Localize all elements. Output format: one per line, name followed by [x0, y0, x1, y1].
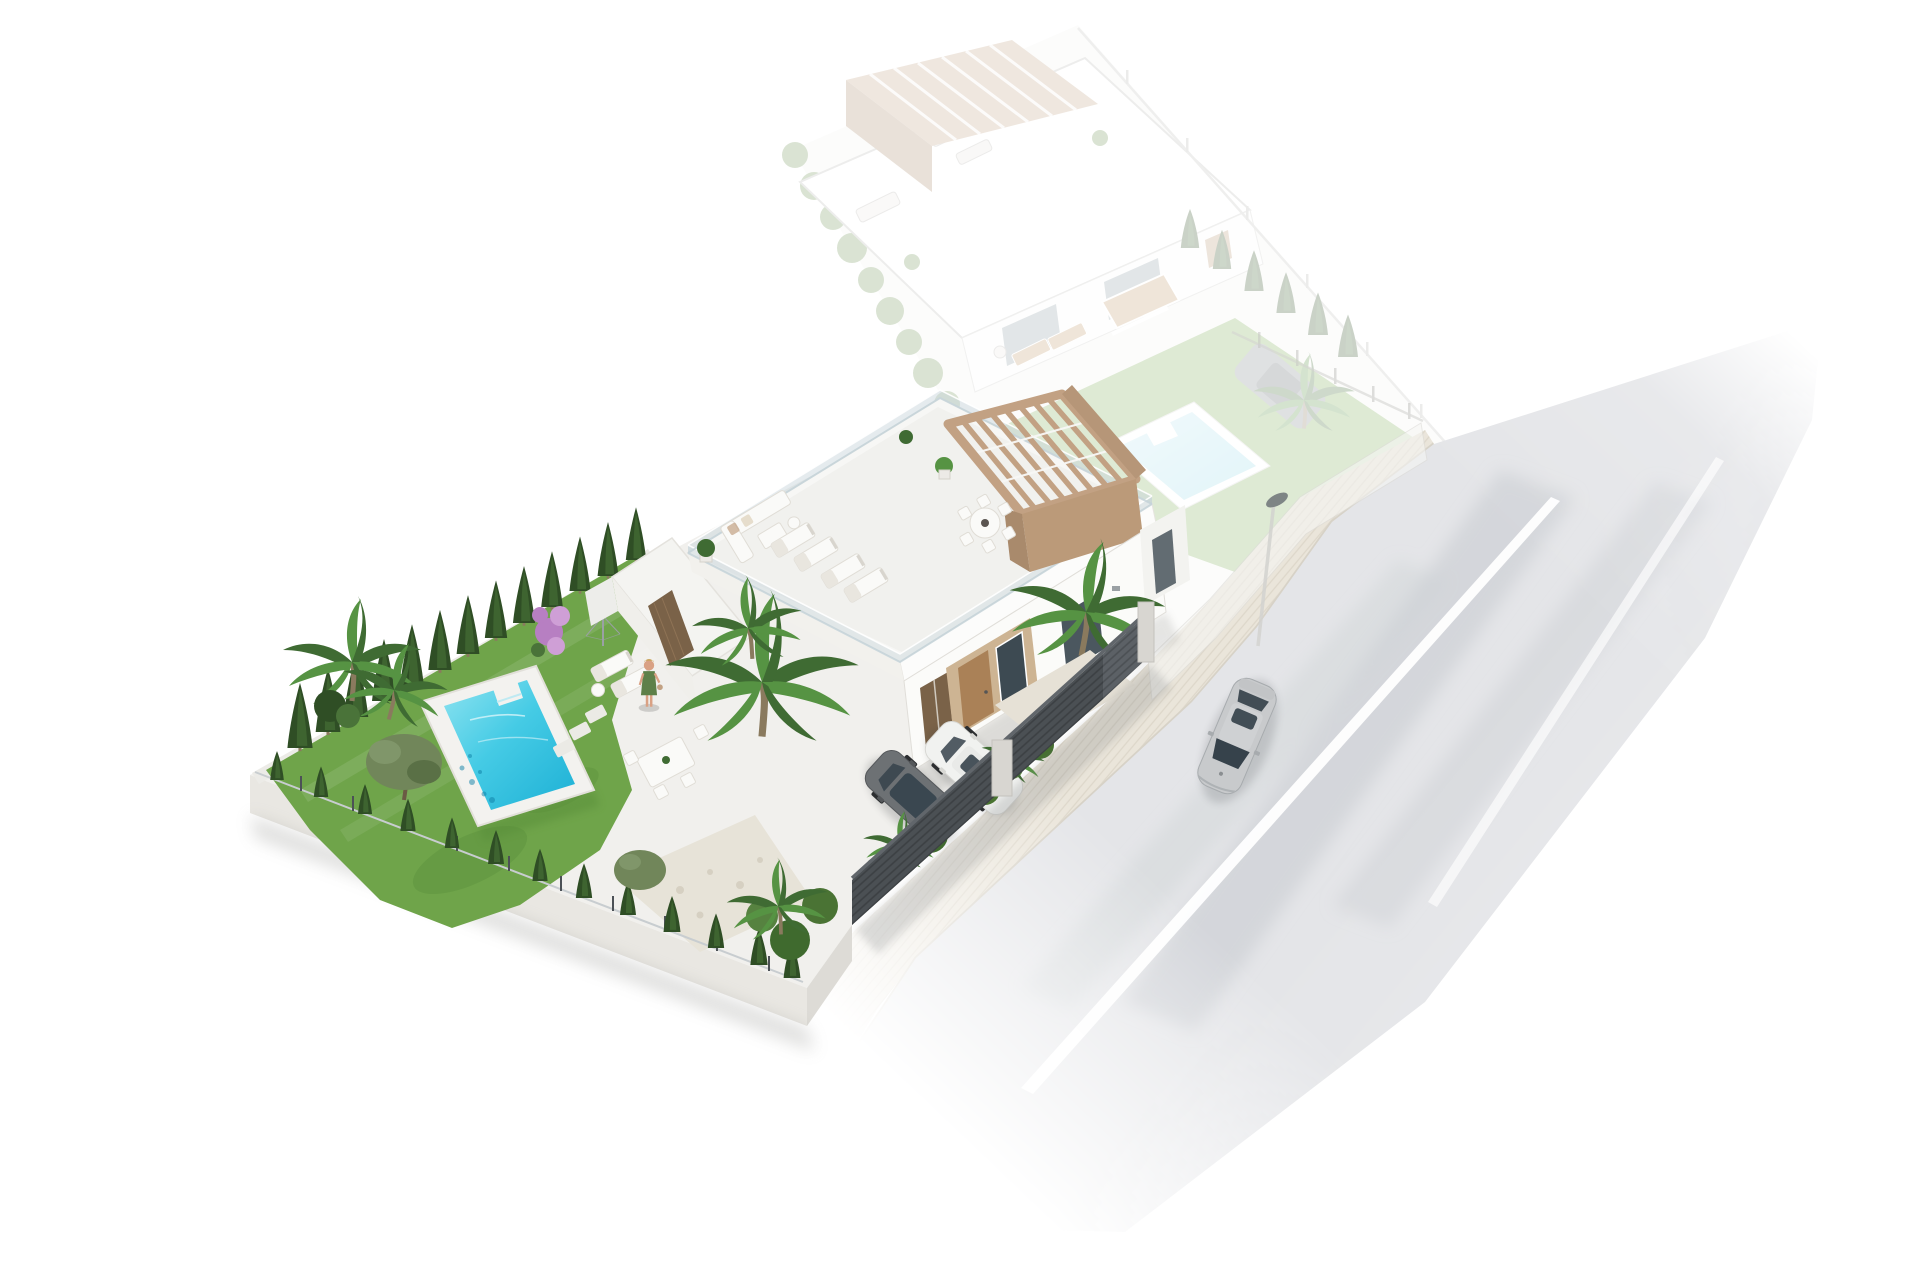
- wall-vent: [1112, 586, 1120, 591]
- olive-tree-small: [614, 850, 666, 890]
- render-canvas: [0, 0, 1920, 1280]
- side-table: [592, 684, 605, 697]
- fence-end-pillar: [1138, 602, 1154, 662]
- rear-window: [1152, 529, 1176, 594]
- fence-concrete-pillar: [992, 740, 1012, 796]
- villa-aerial-render: [0, 0, 1920, 1280]
